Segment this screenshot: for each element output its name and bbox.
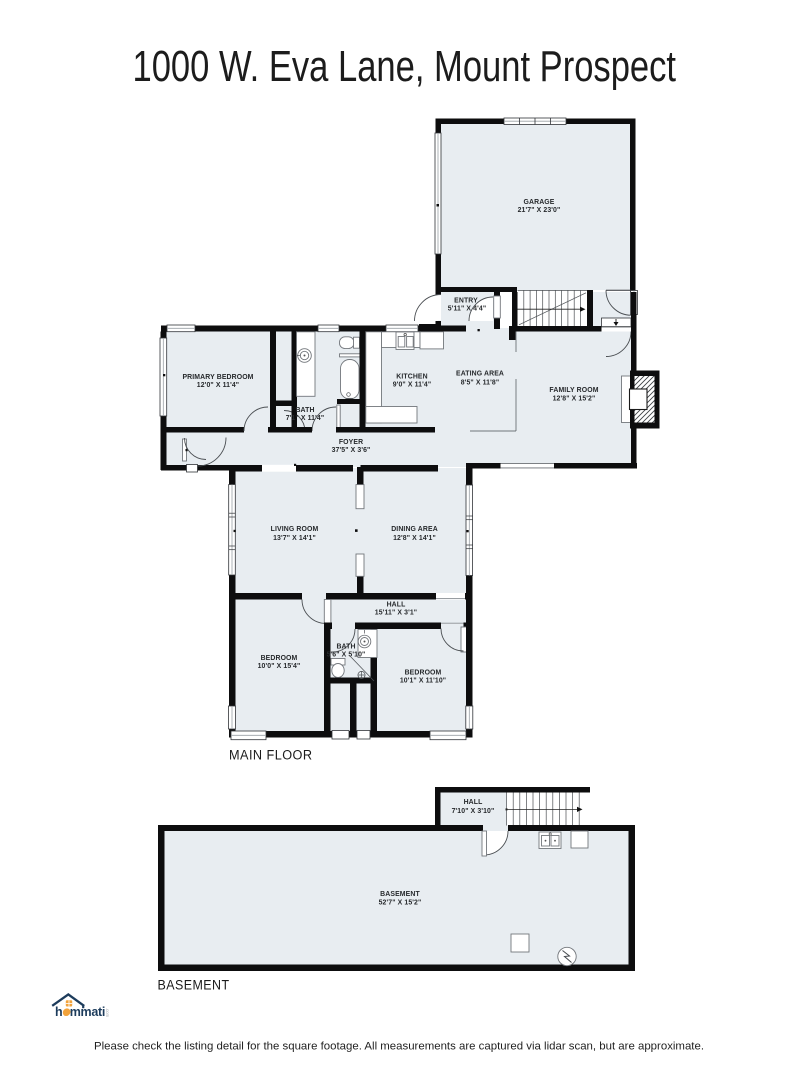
svg-text:21'7" X 23'0": 21'7" X 23'0" xyxy=(518,207,561,214)
svg-text:9'0" X 11'4": 9'0" X 11'4" xyxy=(393,381,431,388)
svg-text:KITCHEN: KITCHEN xyxy=(396,373,427,380)
svg-text:BATH: BATH xyxy=(295,407,314,414)
svg-text:15'11" X 3'1": 15'11" X 3'1" xyxy=(375,609,417,616)
svg-text:HALL: HALL xyxy=(464,799,483,806)
svg-text:8'5" X 11'8": 8'5" X 11'8" xyxy=(461,379,499,386)
svg-text:5'11" X 4'4": 5'11" X 4'4" xyxy=(448,306,486,313)
svg-text:52'7" X 15'2": 52'7" X 15'2" xyxy=(379,900,422,907)
svg-text:7'10" X 3'10": 7'10" X 3'10" xyxy=(452,808,495,815)
svg-text:BATH: BATH xyxy=(336,644,355,651)
svg-text:BASEMENT: BASEMENT xyxy=(380,891,420,898)
svg-text:10'0" X 15'4": 10'0" X 15'4" xyxy=(258,663,301,670)
svg-text:FOYER: FOYER xyxy=(339,439,363,446)
svg-text:hommati: hommati xyxy=(55,1005,105,1019)
svg-text:.com: .com xyxy=(105,1008,110,1018)
svg-text:7'1" X 11'4": 7'1" X 11'4" xyxy=(286,415,324,422)
svg-text:BEDROOM: BEDROOM xyxy=(261,655,298,662)
svg-text:12'8" X 15'2": 12'8" X 15'2" xyxy=(553,395,596,402)
svg-text:GARAGE: GARAGE xyxy=(524,199,555,206)
svg-text:MAIN FLOOR: MAIN FLOOR xyxy=(229,748,313,764)
svg-text:Please check the listing detai: Please check the listing detail for the … xyxy=(94,1041,704,1053)
svg-text:BEDROOM: BEDROOM xyxy=(405,670,442,677)
svg-text:13'7" X 14'1": 13'7" X 14'1" xyxy=(273,535,316,542)
svg-text:EATING AREA: EATING AREA xyxy=(456,371,504,378)
svg-text:12'8" X 14'1": 12'8" X 14'1" xyxy=(393,535,436,542)
svg-text:12'0" X 11'4": 12'0" X 11'4" xyxy=(197,382,239,389)
svg-text:ENTRY: ENTRY xyxy=(454,298,478,305)
svg-text:5'6" X 5'10": 5'6" X 5'10" xyxy=(327,652,366,659)
svg-text:DINING AREA: DINING AREA xyxy=(391,526,438,533)
svg-text:1000 W. Eva Lane, Mount Prospe: 1000 W. Eva Lane, Mount Prospect xyxy=(133,43,677,91)
svg-text:PRIMARY BEDROOM: PRIMARY BEDROOM xyxy=(182,374,253,381)
svg-text:BASEMENT: BASEMENT xyxy=(158,978,230,994)
svg-text:10'1" X 11'10": 10'1" X 11'10" xyxy=(400,678,446,685)
svg-text:HALL: HALL xyxy=(387,601,406,608)
svg-text:LIVING ROOM: LIVING ROOM xyxy=(271,526,319,533)
svg-text:FAMILY ROOM: FAMILY ROOM xyxy=(549,387,598,394)
svg-text:37'5" X 3'6": 37'5" X 3'6" xyxy=(332,447,371,454)
